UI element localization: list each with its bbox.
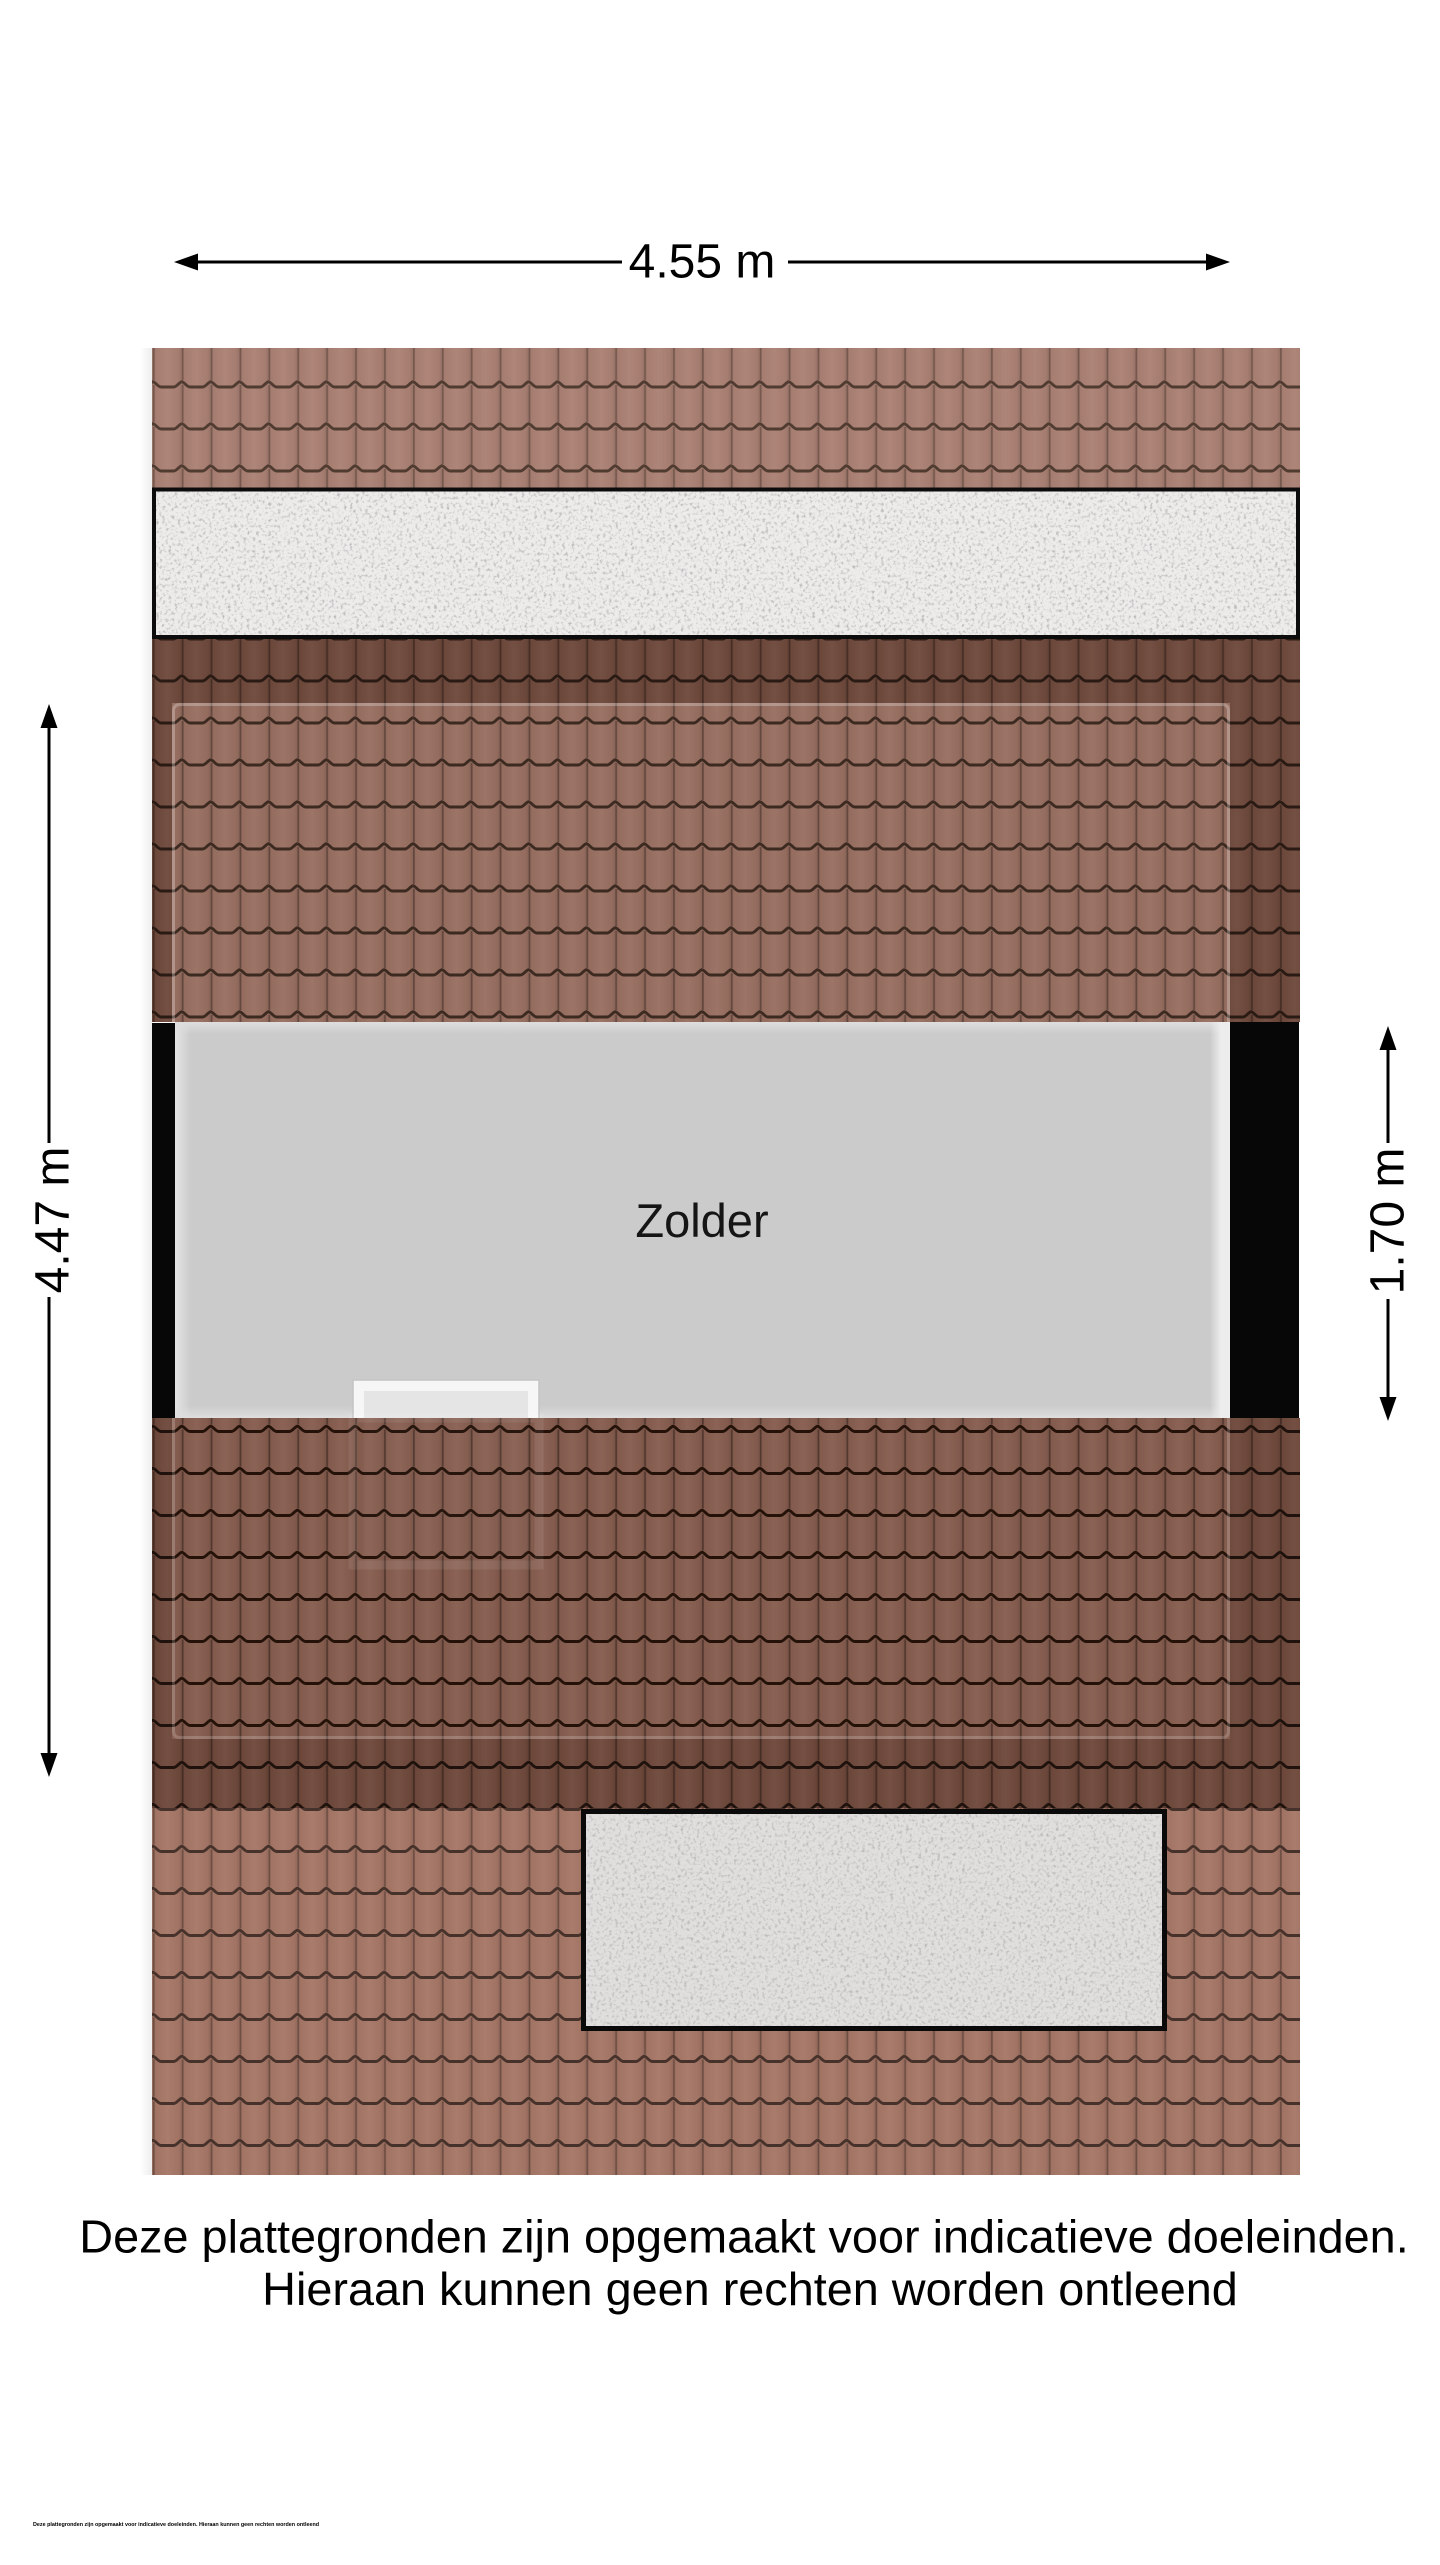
svg-text:4.55 m: 4.55 m — [629, 236, 776, 289]
svg-text:Deze plattegronden zijn opgema: Deze plattegronden zijn opgemaakt voor i… — [33, 2522, 319, 2528]
svg-text:1.70 m: 1.70 m — [1362, 1148, 1415, 1295]
svg-text:Zolder: Zolder — [635, 1194, 768, 1247]
svg-text:Hieraan kunnen geen rechten wo: Hieraan kunnen geen rechten worden ontle… — [262, 2263, 1238, 2315]
svg-text:4.47 m: 4.47 m — [27, 1147, 80, 1294]
svg-text:Deze plattegronden zijn opgema: Deze plattegronden zijn opgemaakt voor i… — [79, 2211, 1408, 2263]
